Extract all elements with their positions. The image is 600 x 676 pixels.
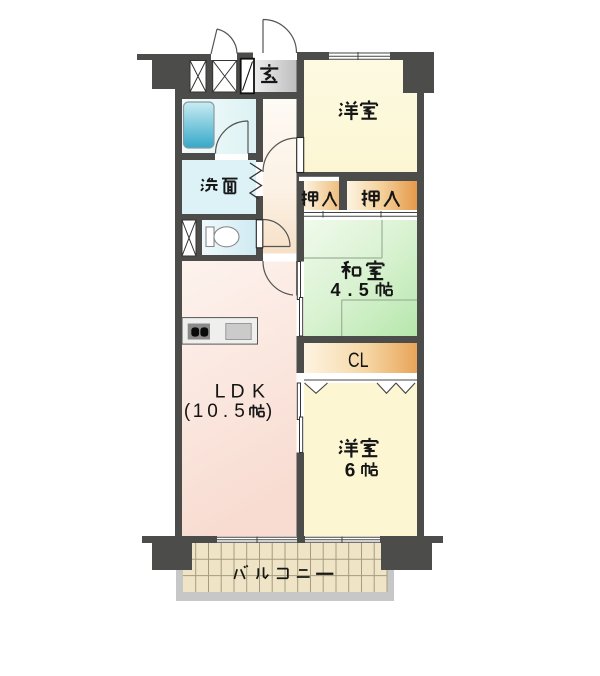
svg-text:1: 1 <box>193 401 204 422</box>
svg-text:4: 4 <box>330 280 340 300</box>
svg-text:): ) <box>266 401 272 422</box>
svg-text:D: D <box>230 381 244 403</box>
svg-text:5: 5 <box>234 401 245 422</box>
svg-text:.: . <box>223 401 228 422</box>
svg-text:6: 6 <box>345 461 356 482</box>
svg-text:K: K <box>252 381 265 403</box>
svg-text:.: . <box>347 280 352 300</box>
svg-text:5: 5 <box>359 280 369 300</box>
svg-text:CL: CL <box>348 349 369 372</box>
svg-text:L: L <box>215 381 226 403</box>
svg-text:0: 0 <box>207 401 218 422</box>
svg-text:(: ( <box>184 401 191 422</box>
